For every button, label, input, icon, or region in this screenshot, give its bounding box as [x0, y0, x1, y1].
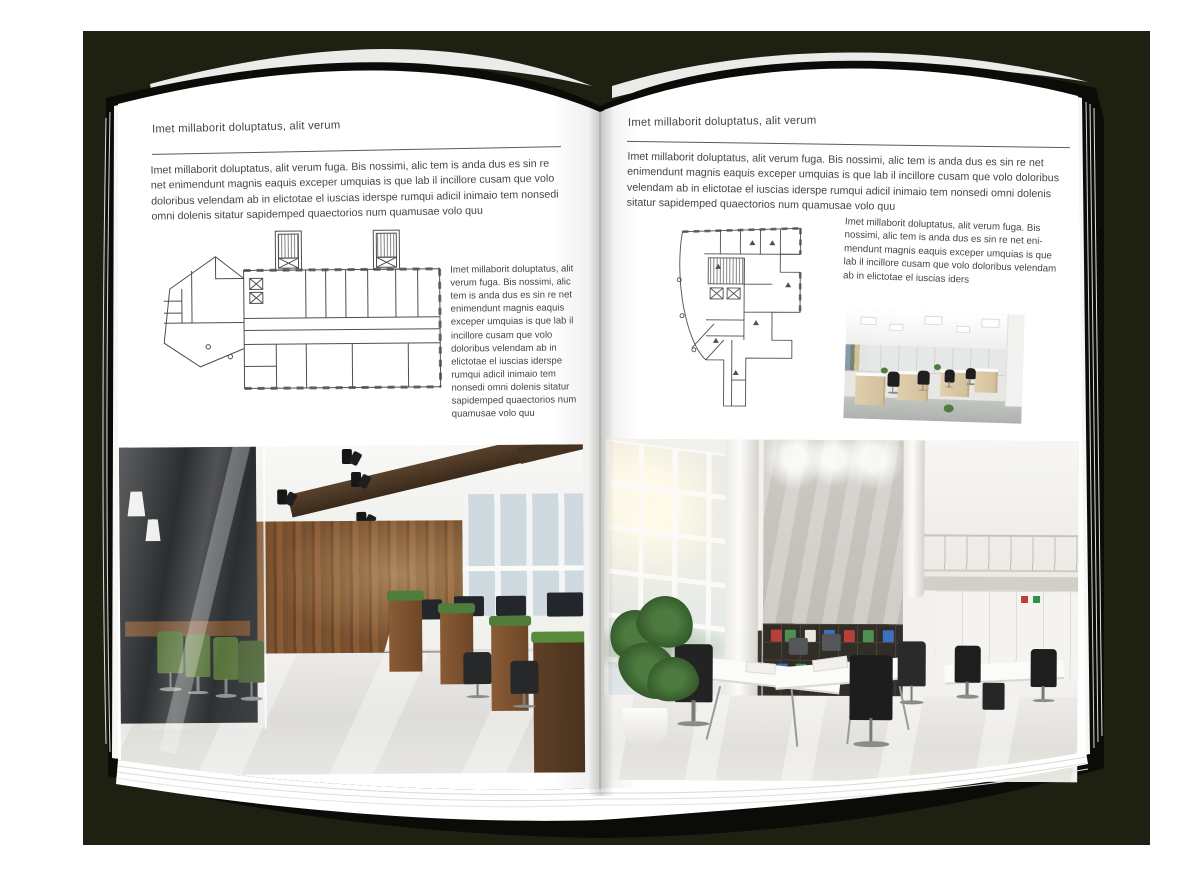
binders-green — [863, 630, 874, 642]
desk-cabinet — [974, 368, 998, 394]
concrete-feature-wall — [763, 440, 904, 625]
ceiling-light — [861, 316, 877, 324]
plant-pot — [622, 708, 667, 746]
desk-plant — [880, 367, 887, 373]
right-page-header: Imet millaborit doluptatus, alit verum — [628, 113, 948, 129]
track-spotlight — [342, 449, 352, 464]
floor-plant — [943, 404, 953, 412]
monitor — [547, 592, 583, 616]
office-chair — [966, 368, 976, 380]
track-spotlight — [351, 472, 361, 487]
left-page-header-rule — [152, 146, 561, 155]
ceiling-light — [889, 324, 903, 331]
book-mockup-stage: Imet millaborit doluptatus, alit verum I… — [0, 0, 1200, 891]
ceiling — [846, 309, 1025, 349]
waste-bin — [983, 683, 1004, 710]
right-page-intro: Imet millaborit doluptatus, alit verum f… — [627, 150, 1064, 218]
desk-cabinet — [854, 373, 885, 405]
ceiling-light — [982, 319, 1000, 329]
office-chair — [954, 645, 980, 683]
round-column — [903, 440, 925, 597]
binders-blue — [883, 630, 894, 642]
office-chair — [850, 655, 893, 720]
office-chair — [897, 641, 926, 685]
planter-box — [389, 600, 422, 672]
mezzanine-shadow — [898, 577, 1078, 592]
office-chair — [1030, 649, 1056, 687]
white-column — [1005, 314, 1025, 406]
left-page-photo-loft-office — [119, 444, 585, 775]
office-chair — [464, 652, 492, 685]
monitor — [496, 596, 526, 616]
binders-red — [844, 630, 855, 642]
round-column — [724, 439, 759, 732]
ceiling-light — [956, 326, 970, 333]
exit-sign — [1033, 596, 1040, 603]
glass-partition — [119, 447, 267, 730]
track-spotlight — [277, 489, 287, 504]
left-page-side-text: Imet millaborit doluptatus, alit verum f… — [450, 262, 577, 421]
office-chair — [944, 369, 955, 382]
left-floor-plan — [155, 225, 447, 412]
monitor — [822, 634, 841, 651]
left-page-intro: Imet millaborit doluptatus, alit verum f… — [150, 156, 565, 224]
office-chair — [510, 661, 538, 694]
monitor — [789, 637, 808, 654]
right-page-photo-white-office — [603, 439, 1079, 782]
ceiling-light — [925, 316, 943, 326]
floor-plan-drawing — [647, 220, 823, 421]
binders-red — [771, 629, 782, 641]
office-chair — [887, 372, 900, 388]
right-page-header-rule — [627, 141, 1070, 148]
mezzanine-balcony — [922, 440, 1079, 577]
spread-content: Imet millaborit doluptatus, alit verum I… — [0, 0, 1200, 891]
planter-box — [533, 641, 585, 773]
right-floor-plan — [647, 220, 823, 421]
first-aid-sign — [1021, 596, 1028, 603]
left-page-header: Imet millaborit doluptatus, alit verum — [152, 116, 472, 135]
right-page-photo-workstations — [843, 309, 1024, 424]
right-page-side-text: Imet millaborit doluptatus, alit verum f… — [843, 215, 1059, 289]
floor-plan-drawing — [155, 225, 447, 412]
polished-floor — [603, 695, 1077, 783]
office-chair — [917, 370, 929, 385]
